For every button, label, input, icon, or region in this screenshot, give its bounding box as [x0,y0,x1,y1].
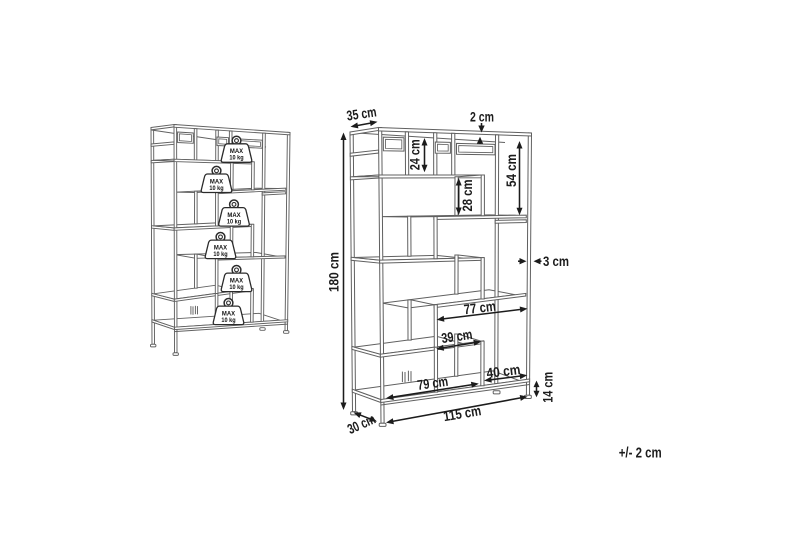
svg-text:24 cm: 24 cm [406,139,422,170]
svg-text:3 cm: 3 cm [543,253,569,269]
svg-text:14 cm: 14 cm [539,372,555,403]
svg-text:10 kg: 10 kg [209,185,223,192]
svg-text:54 cm: 54 cm [503,154,519,187]
svg-text:10 kg: 10 kg [227,219,241,226]
svg-text:10 kg: 10 kg [229,155,243,162]
svg-text:10 kg: 10 kg [213,251,227,258]
svg-text:10 kg: 10 kg [229,284,243,291]
svg-text:2 cm: 2 cm [470,109,494,125]
svg-text:28 cm: 28 cm [459,180,475,212]
svg-text:180 cm: 180 cm [326,252,342,292]
svg-text:+/- 2 cm: +/- 2 cm [619,445,662,461]
svg-text:10 kg: 10 kg [221,317,235,324]
